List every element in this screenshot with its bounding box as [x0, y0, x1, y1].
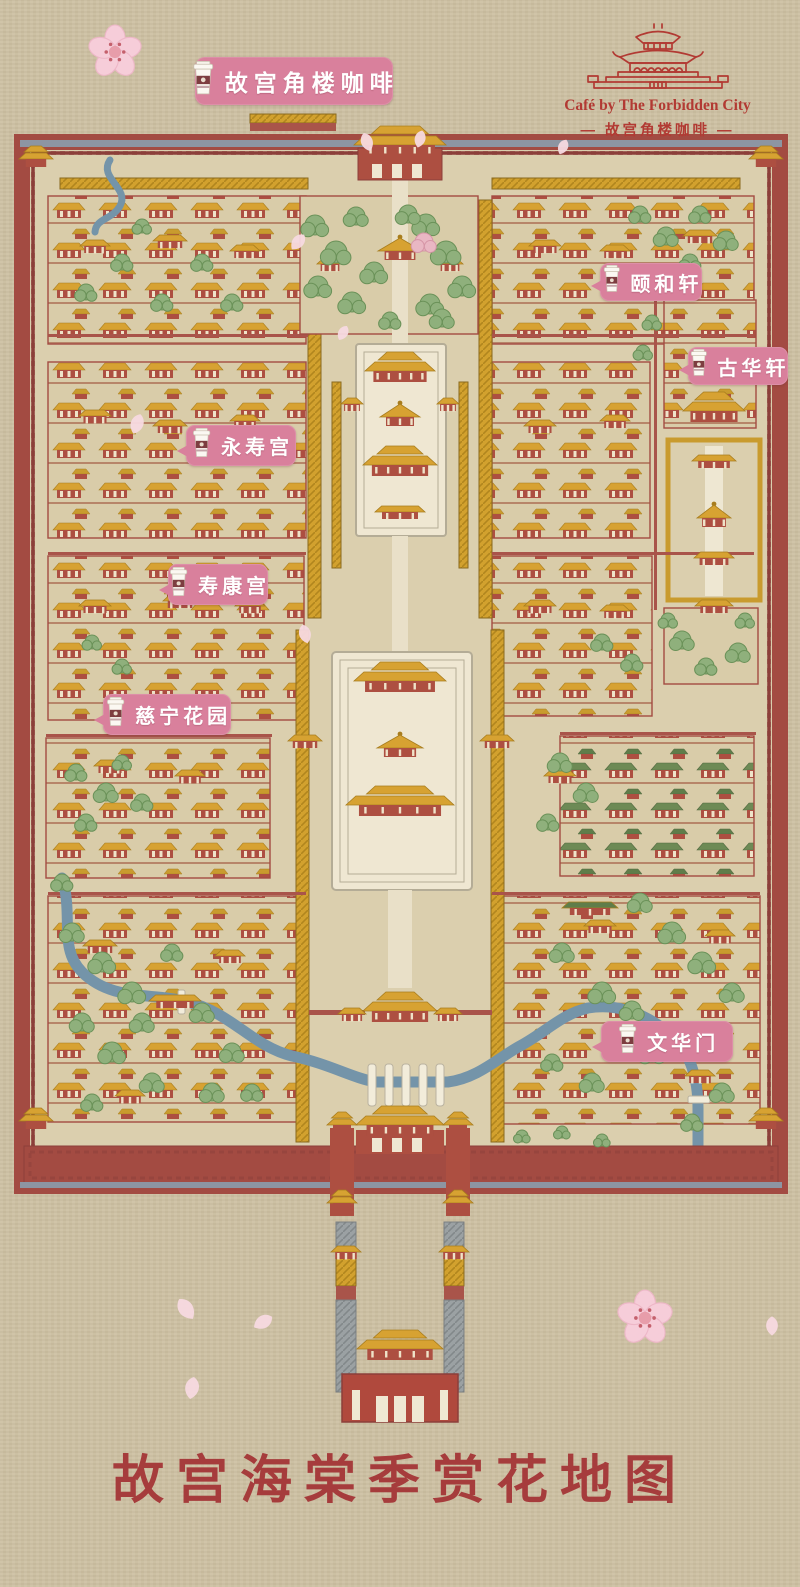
map-label-text: 古华轩 — [717, 352, 789, 381]
coffee-cup-icon — [191, 428, 212, 464]
cafe-banner-label: 故宫角楼咖啡 — [225, 64, 399, 98]
coffee-cup-icon — [168, 567, 189, 603]
palace-line-art-icon — [558, 22, 758, 90]
brand-logo: Café by The Forbidden City — 故宫角楼咖啡 — — [540, 22, 775, 140]
map-label-yongshougong: 永寿宫 — [186, 425, 296, 466]
map-illustration — [0, 0, 800, 1587]
coffee-cup-icon — [689, 349, 709, 382]
meridian-gate-complex — [20, 1106, 782, 1422]
map-label-yihexuan: 颐和轩 — [600, 263, 702, 301]
map-title: 故宫海棠季赏花地图 — [0, 1438, 800, 1513]
map-label-text: 寿康宫 — [198, 570, 270, 599]
map-label-cininghuayuan: 慈宁花园 — [103, 694, 231, 735]
map-label-text: 永寿宫 — [221, 431, 293, 460]
cafe-banner: 故宫角楼咖啡 — [195, 57, 393, 105]
coffee-cup-icon — [191, 61, 215, 101]
map-label-shoukanggong: 寿康宫 — [168, 564, 268, 605]
screen-wall — [250, 114, 336, 131]
logo-text-en: Café by The Forbidden City — [540, 97, 775, 115]
map-label-guhuaxuan: 古华轩 — [688, 347, 788, 385]
logo-text-zh: — 故宫角楼咖啡 — — [540, 119, 775, 140]
coffee-cup-icon — [105, 697, 126, 733]
poster: 故宫角楼咖啡 Café by The Forbidden City — 故宫角楼… — [0, 0, 800, 1587]
map-label-wenhuamen: 文华门 — [601, 1021, 733, 1062]
map-label-text: 颐和轩 — [630, 268, 702, 297]
map-label-text: 文华门 — [647, 1027, 719, 1056]
coffee-cup-icon — [602, 265, 622, 298]
map-label-text: 慈宁花园 — [135, 700, 231, 729]
coffee-cup-icon — [617, 1024, 638, 1060]
